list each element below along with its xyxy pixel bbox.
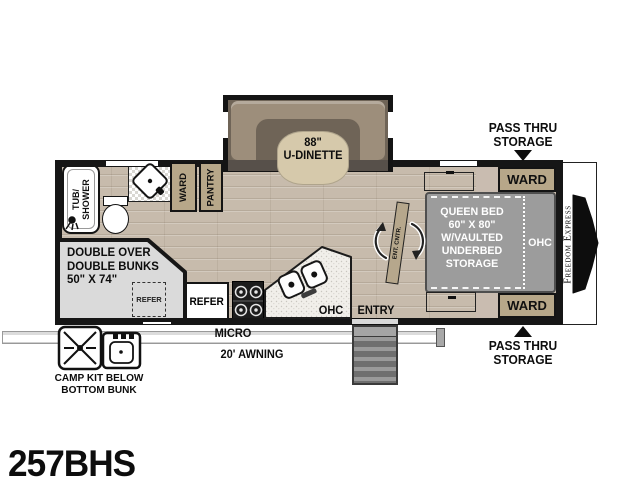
pass-thru-top-label: PASS THRU STORAGE <box>489 121 557 149</box>
stove-burners-icon <box>233 287 263 316</box>
pass-thru-bottom-arrow <box>514 326 532 337</box>
bath-sink-icon <box>132 163 172 203</box>
pass-thru-bottom-line2: STORAGE <box>493 353 552 367</box>
awning-label: 20' AWNING <box>221 349 284 361</box>
camp-grill-icon <box>59 327 101 369</box>
pass-thru-bottom-label: PASS THRU STORAGE <box>489 339 557 367</box>
model-number: 257BHS <box>8 443 135 480</box>
pass-thru-top-line2: STORAGE <box>493 135 552 149</box>
pass-thru-top-arrow <box>514 150 532 161</box>
bunk-label-line1: DOUBLE OVER <box>67 245 151 259</box>
camp-kit-line1: CAMP KIT BELOW <box>55 372 144 384</box>
camp-kit-line2: BOTTOM BUNK <box>61 384 136 396</box>
shower-head-icon <box>66 217 78 230</box>
micro-label: MICRO <box>215 328 252 340</box>
front-cap-graphic <box>573 195 598 293</box>
plan-shapes <box>0 0 640 480</box>
camp-sink-icon <box>103 333 140 368</box>
bunk-label-line3: 50" X 74" <box>67 272 117 286</box>
kitchen-ohc-label: OHC <box>319 305 344 317</box>
floorplan-257bhs: TUB/ SHOWER WARD WARD QUEEN BED 60" X 80… <box>0 0 640 480</box>
tv-swivel-arrows-icon <box>376 222 423 260</box>
pass-thru-top-line1: PASS THRU <box>489 121 557 135</box>
pass-thru-bottom-line1: PASS THRU <box>489 339 557 353</box>
bunk-refer-option: REFER <box>132 282 166 317</box>
bunk-label-line2: DOUBLE BUNKS <box>67 259 159 273</box>
bunk-label: DOUBLE OVER DOUBLE BUNKS 50" X 74" <box>67 246 159 287</box>
camp-kit-label: CAMP KIT BELOW BOTTOM BUNK <box>55 372 144 396</box>
entry-label: ENTRY <box>357 305 394 317</box>
bunk-refer-label: REFER <box>136 295 161 304</box>
